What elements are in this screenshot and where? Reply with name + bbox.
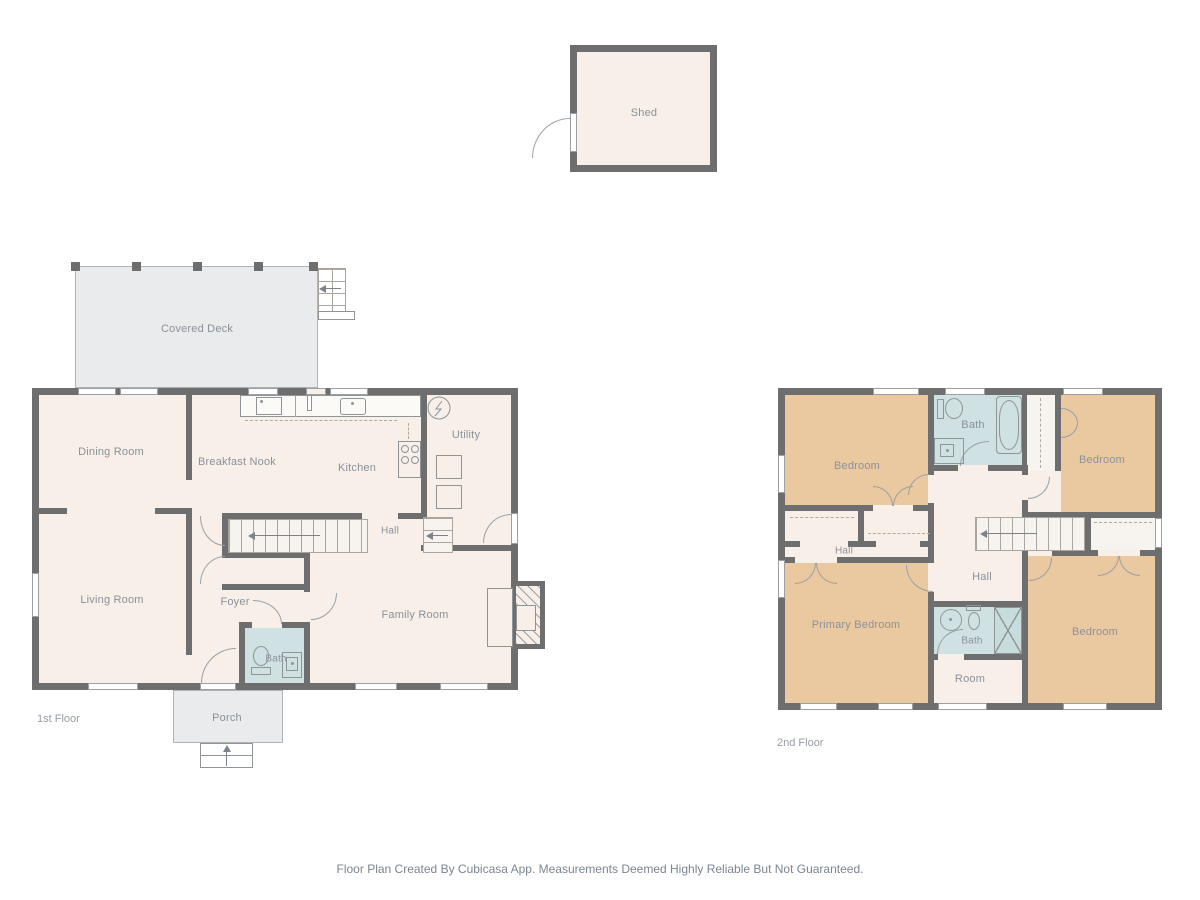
window [938,703,987,710]
deck-post [71,262,80,271]
toilet-icon [968,612,980,630]
closet-rod-dashed-line [790,517,854,518]
wall [304,622,310,683]
door-arc [532,118,570,158]
room-label-bedroom-ne: Bedroom [1079,454,1125,466]
floor-title-2nd: 2nd Floor [777,737,823,749]
sink-drain-icon [351,402,354,405]
wall [928,592,934,703]
wall [1022,395,1027,471]
toilet-tank-icon [966,605,981,611]
wall [964,654,1028,660]
window [355,683,397,690]
room-label-kitchen: Kitchen [338,462,376,474]
window [878,703,913,710]
bathtub-basin-icon [999,400,1019,450]
room-label-shed: Shed [631,107,658,119]
footer-disclaimer: Floor Plan Created By Cubicasa App. Meas… [0,862,1200,876]
deck-post [254,262,263,271]
closet-rod-dashed-line [1040,398,1041,468]
window [248,388,278,395]
window [120,388,158,395]
wall [222,584,308,590]
shower-icon [994,607,1022,654]
burner-icon [401,445,409,453]
room-label-utility: Utility [452,429,480,441]
front-door-opening [200,683,236,690]
closet-floor [1027,395,1055,471]
primary-bedroom-floor [785,563,928,703]
sink-drain-icon [291,662,294,665]
room-label-bath-lower: Bath [961,636,982,647]
water-heater-icon [427,396,451,420]
room-label-bath-upper: Bath [961,419,984,431]
window [88,683,138,690]
window [873,388,919,395]
room-label-family-room: Family Room [382,609,449,621]
entry-arrow-icon [226,747,227,766]
dryer-icon [436,485,462,509]
shed-door-opening [570,113,577,152]
wall [1140,550,1155,556]
wall [186,395,192,480]
deck-post [309,262,318,271]
floor-title-1st: 1st Floor [37,713,80,725]
deck-step [318,311,355,320]
stove-icon [398,441,421,478]
deck-post [132,262,141,271]
toilet-tank-icon [251,667,271,675]
washer-icon [436,455,462,479]
firebox [516,605,536,631]
window [945,388,985,395]
room-label-covered-deck: Covered Deck [161,323,233,335]
toilet-tank-icon [937,399,944,419]
wall [928,465,958,471]
sink-drain-icon [946,449,949,452]
closet-rod-dashed-line [868,533,930,534]
room-label-living-room: Living Room [80,594,143,606]
fireplace-hearth [487,588,513,647]
burner-icon [401,456,409,464]
door-leaf [307,395,312,411]
room-label-foyer: Foyer [220,596,249,608]
room-label-bedroom-nw: Bedroom [834,460,880,472]
wall [858,511,864,541]
kitchen-sink-icon [340,398,366,415]
window [800,703,837,710]
room-label-bedroom-se: Bedroom [1072,626,1118,638]
counter-divider [295,395,296,417]
wall [304,553,310,592]
deck-door-opening [306,388,326,395]
wall [785,541,800,547]
stair-arrow-icon [428,535,448,536]
room-label-room: Room [955,673,985,685]
staircase [975,517,1085,551]
wall [913,505,934,511]
room-label-primary-bedroom: Primary Bedroom [812,619,901,631]
wall [920,541,934,547]
burner-icon [411,456,419,464]
stair-arrow-icon [321,288,341,289]
room-label-bath: Bath [265,654,286,665]
upper-cabinet-dashed-line [408,423,409,439]
room-label-hall-center: Hall [972,571,992,583]
burner-icon [411,445,419,453]
room-label-porch: Porch [212,712,242,724]
wall [928,654,938,660]
toilet-icon [945,398,963,419]
floor-plan-canvas: Shed Covered Deck Bath [0,0,1200,900]
window [330,388,368,395]
wall [1022,550,1028,703]
wall [186,514,192,655]
wall [1022,465,1028,475]
room-label-breakfast-nook: Breakfast Nook [198,456,276,468]
window [32,573,39,617]
window [778,455,785,493]
utility-door-opening [511,513,518,544]
wall [785,557,795,563]
appliance-knob-icon [260,400,263,403]
window [1155,518,1162,548]
stair-arrow-icon [982,533,1037,534]
window [78,388,116,395]
window [1063,703,1107,710]
closet-rod-dashed-line [1094,522,1152,523]
room-label-hall: Hall [381,526,399,537]
wall [39,508,67,514]
upper-cabinet-dashed-line [245,420,397,421]
room-label-dining-room: Dining Room [78,446,144,458]
window [1063,388,1103,395]
room-label-hall-west: Hall [835,546,853,557]
wall [837,557,934,563]
deck-stairs-rail [332,269,333,311]
sink-drain-icon [949,618,952,621]
window [440,683,488,690]
stair-arrow-icon [250,535,320,536]
deck-post [193,262,202,271]
window [778,560,785,598]
